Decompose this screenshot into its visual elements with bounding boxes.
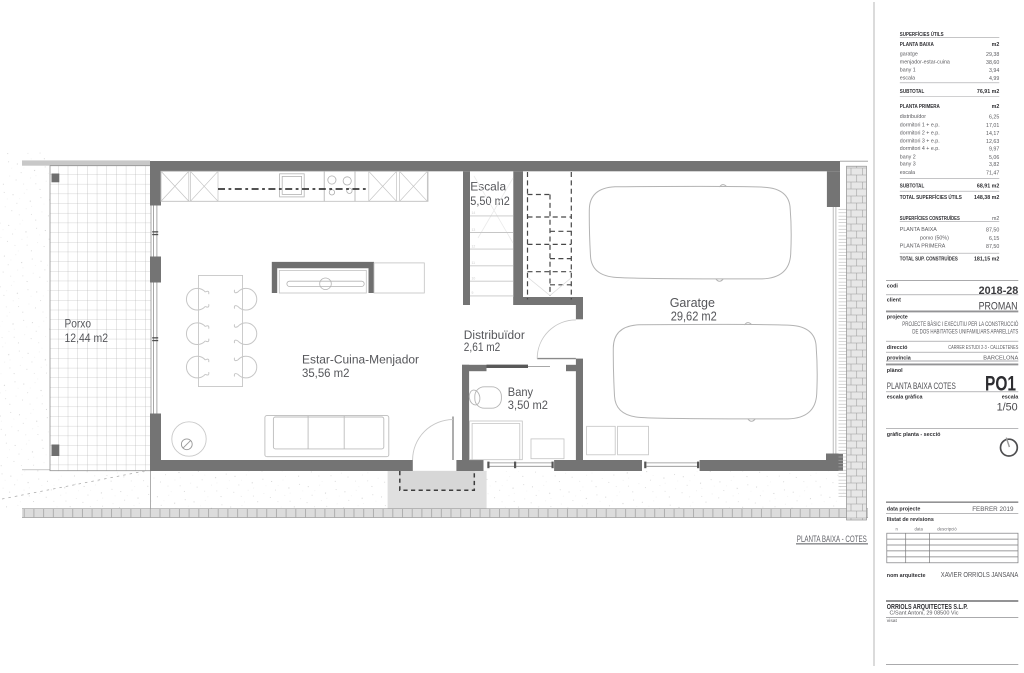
svg-text:9: 9	[472, 291, 474, 295]
svg-text:DE DOS HABITATGES UNIFAMILIARS: DE DOS HABITATGES UNIFAMILIARS APARELLAT…	[912, 329, 1018, 336]
svg-text:14,17: 14,17	[986, 131, 999, 137]
svg-text:3,50 m2: 3,50 m2	[508, 398, 548, 412]
svg-text:SUBTOTAL: SUBTOTAL	[900, 89, 925, 95]
svg-text:FEBRER 2019: FEBRER 2019	[972, 506, 1014, 513]
svg-text:escala: escala	[900, 170, 915, 176]
svg-text:llistat de revisions: llistat de revisions	[887, 517, 934, 523]
svg-text:bany 3: bany 3	[900, 162, 916, 168]
svg-text:nom arquitecte: nom arquitecte	[887, 573, 926, 579]
svg-text:14: 14	[472, 211, 476, 215]
svg-text:garatge: garatge	[900, 51, 918, 57]
svg-text:escala: escala	[900, 76, 915, 82]
svg-text:17,01: 17,01	[986, 123, 999, 129]
svg-text:codi: codi	[887, 284, 899, 290]
svg-text:TOTAL SUPERFÍCIES ÚTILS: TOTAL SUPERFÍCIES ÚTILS	[900, 193, 962, 201]
svg-text:m2: m2	[992, 42, 1000, 48]
svg-text:PLANTA PRIMERA: PLANTA PRIMERA	[900, 244, 946, 250]
svg-text:PROJECTE BÀSIC I EXECUTIU PER: PROJECTE BÀSIC I EXECUTIU PER LA CONSTRU…	[902, 321, 1018, 328]
svg-text:181,15 m2: 181,15 m2	[974, 257, 999, 263]
svg-text:bany 1: bany 1	[900, 68, 916, 74]
svg-text:projecte: projecte	[887, 314, 908, 320]
svg-text:escala: escala	[1002, 394, 1019, 400]
svg-text:5,50 m2: 5,50 m2	[470, 194, 510, 208]
svg-text:11: 11	[472, 261, 476, 265]
svg-text:29,38: 29,38	[986, 52, 999, 58]
svg-text:client: client	[887, 298, 901, 304]
svg-text:71,47: 71,47	[986, 171, 999, 177]
svg-text:12,44 m2: 12,44 m2	[65, 331, 109, 345]
svg-text:68,91 m2: 68,91 m2	[977, 183, 999, 189]
svg-text:2,61 m2: 2,61 m2	[464, 340, 501, 354]
svg-text:Porxo: Porxo	[65, 317, 92, 331]
svg-text:m2: m2	[992, 104, 1000, 110]
svg-text:dormitori 1 + e.p.: dormitori 1 + e.p.	[900, 122, 940, 128]
svg-text:menjador-estar-cuina: menjador-estar-cuina	[900, 60, 950, 66]
svg-text:PLANTA BAIXA COTES: PLANTA BAIXA COTES	[887, 381, 956, 391]
svg-text:Estar-Cuina-Menjador: Estar-Cuina-Menjador	[302, 353, 419, 367]
svg-text:data projecte: data projecte	[887, 507, 921, 513]
svg-text:35,56 m2: 35,56 m2	[302, 366, 350, 380]
svg-text:1/50: 1/50	[997, 402, 1018, 414]
svg-text:descripció: descripció	[937, 527, 957, 532]
svg-text:SUBTOTAL: SUBTOTAL	[900, 183, 925, 189]
svg-text:SUPERFÍCIES CONSTRUÏDES: SUPERFÍCIES CONSTRUÏDES	[900, 214, 960, 222]
svg-text:SUPERFÍCIES ÚTILS: SUPERFÍCIES ÚTILS	[900, 30, 944, 38]
svg-text:escala gràfica: escala gràfica	[887, 394, 924, 400]
svg-text:distribuïdor: distribuïdor	[900, 114, 926, 120]
svg-text:Bany: Bany	[508, 385, 534, 399]
svg-text:bany 2: bany 2	[900, 154, 916, 160]
svg-text:dormitori 3 + e.p.: dormitori 3 + e.p.	[900, 138, 940, 144]
svg-text:dormitori 4 + e.p.: dormitori 4 + e.p.	[900, 146, 940, 152]
svg-text:76,91 m2: 76,91 m2	[977, 89, 999, 95]
svg-text:plànol: plànol	[887, 368, 903, 374]
svg-text:3,82: 3,82	[989, 162, 999, 168]
svg-text:visat: visat	[887, 618, 898, 624]
svg-text:data: data	[915, 527, 924, 532]
svg-text:n: n	[896, 527, 899, 532]
svg-text:TOTAL SUP. CONSTRUÏDES: TOTAL SUP. CONSTRUÏDES	[900, 256, 958, 263]
svg-text:12: 12	[472, 244, 476, 248]
svg-text:38,60: 38,60	[986, 60, 999, 66]
svg-text:9,97: 9,97	[989, 147, 999, 153]
svg-text:148,38 m2: 148,38 m2	[974, 195, 999, 201]
svg-text:C/Sant Antoni, 29 08500 Vic: C/Sant Antoni, 29 08500 Vic	[890, 611, 959, 617]
svg-text:12,63: 12,63	[986, 139, 999, 145]
svg-text:ORRIOLS ARQUITECTES S.L.P.: ORRIOLS ARQUITECTES S.L.P.	[887, 603, 968, 611]
svg-text:PLANTA BAIXA: PLANTA BAIXA	[900, 42, 934, 48]
svg-text:direcció: direcció	[887, 345, 908, 351]
svg-text:3,94: 3,94	[989, 68, 999, 74]
svg-text:87,50: 87,50	[986, 244, 999, 250]
svg-text:XAVIER ORRIOLS JANSANA: XAVIER ORRIOLS JANSANA	[941, 571, 1019, 579]
svg-text:PLANTA PRIMERA: PLANTA PRIMERA	[900, 104, 940, 110]
svg-text:5,06: 5,06	[989, 155, 999, 161]
svg-text:PLANTA BAIXA: PLANTA BAIXA	[900, 227, 937, 233]
svg-text:10: 10	[472, 277, 476, 281]
svg-text:CARRER ESTUDI 2-3 - CALLDETENE: CARRER ESTUDI 2-3 - CALLDETENES	[948, 345, 1018, 351]
svg-text:6,25: 6,25	[989, 114, 999, 120]
svg-text:Escala: Escala	[470, 180, 506, 194]
svg-text:29,62 m2: 29,62 m2	[671, 309, 717, 324]
svg-text:87,50: 87,50	[986, 228, 999, 234]
svg-text:porxo (50%): porxo (50%)	[920, 235, 949, 241]
svg-text:4,99: 4,99	[989, 76, 999, 82]
svg-text:PLANTA BAIXA - COTES: PLANTA BAIXA - COTES	[797, 534, 867, 544]
svg-text:6,15: 6,15	[989, 236, 999, 242]
svg-text:gràfic planta - secció: gràfic planta - secció	[887, 432, 941, 438]
svg-text:2018-28: 2018-28	[979, 285, 1019, 297]
svg-text:dormitori 2 + e.p.: dormitori 2 + e.p.	[900, 130, 940, 136]
svg-text:13: 13	[472, 228, 476, 232]
